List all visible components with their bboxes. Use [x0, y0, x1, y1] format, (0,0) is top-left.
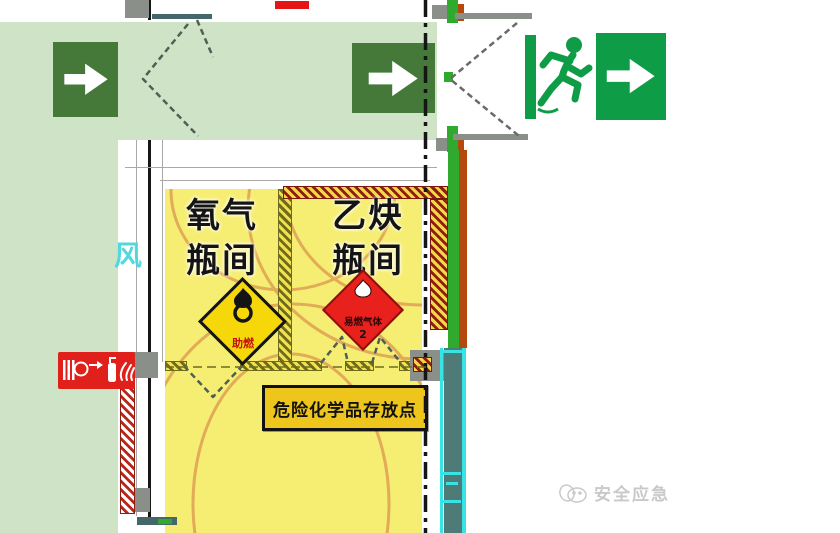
vent-duct-text: 风	[114, 234, 142, 274]
watermark: 安全应急	[558, 480, 670, 505]
exit-arrow-sign-2	[352, 43, 435, 113]
room-label-acetylene: 乙炔 瓶间	[313, 194, 423, 284]
door-post-top-gray	[432, 5, 448, 19]
storage-point-label: 危险化学品存放点	[273, 396, 417, 421]
right-arrow-icon	[60, 53, 112, 106]
fire-hose-extinguisher-icon	[58, 352, 135, 389]
left-wall-inner-line-2	[162, 140, 163, 362]
bottom-wall-seg-2	[240, 361, 322, 371]
bottom-left-green-bit	[158, 519, 172, 524]
left-wall-inner-line	[136, 140, 137, 516]
right-corner-wall	[430, 199, 448, 330]
exit-arrow-sign-3	[596, 33, 666, 120]
corridor-left	[0, 140, 118, 533]
door-swing-exit	[450, 23, 519, 136]
flammable-gas-class-number: 2	[328, 328, 398, 341]
duct-cyan-tick-1	[440, 350, 466, 353]
lintel-top-right	[455, 13, 532, 19]
room-label-acetylene-line1: 乙炔	[313, 194, 423, 239]
room-divider-wall	[278, 189, 292, 365]
oxidizer-label: 助燃	[212, 335, 274, 351]
fire-equipment-sign	[58, 352, 135, 389]
red-marker-bar	[275, 1, 309, 9]
duct-cyan-tick-3	[446, 482, 458, 485]
evacuation-plan-canvas: 氧气 瓶间 乙炔 瓶间 助燃 易燃气体 2 危险化学品存放点	[0, 0, 840, 533]
column-top-left	[125, 0, 149, 18]
right-orange-riser	[459, 150, 467, 348]
duct-cyan-tick-2	[443, 472, 461, 475]
plan-top-line	[125, 167, 437, 168]
running-man-icon	[534, 35, 596, 117]
bottom-wall-seg-3	[345, 361, 374, 371]
flammable-flame-icon	[348, 279, 378, 307]
exit-arrow-sign-1	[53, 42, 118, 117]
watermark-text: 安全应急	[594, 480, 670, 505]
right-arrow-icon	[360, 54, 426, 103]
column-mid-right-hatch	[413, 357, 432, 372]
plan-top-line-2	[160, 180, 430, 181]
right-arrow-icon	[602, 50, 659, 102]
lintel-top-left	[152, 14, 212, 19]
lintel-bottom-right	[453, 134, 528, 140]
duct-cyan-line-left	[440, 348, 443, 533]
door-hinge-dot	[444, 72, 453, 82]
flammable-gas-label: 易燃气体	[328, 314, 398, 328]
duct-cyan-line-right	[462, 348, 466, 533]
left-wall-line	[148, 140, 151, 520]
right-slate-duct	[444, 348, 462, 533]
room-label-oxygen-line2: 瓶间	[167, 239, 277, 284]
watermark-logo-icon	[558, 481, 588, 505]
room-label-oxygen: 氧气 瓶间	[167, 194, 277, 284]
duct-cyan-tick-4	[443, 500, 461, 503]
door-post-top-green	[447, 0, 458, 23]
storage-point-label-box: 危险化学品存放点	[262, 385, 428, 431]
room-label-oxygen-line1: 氧气	[167, 194, 277, 239]
right-green-riser	[448, 150, 459, 348]
bottom-wall-seg-1	[165, 361, 187, 371]
oxidizer-flame-icon	[224, 286, 262, 326]
